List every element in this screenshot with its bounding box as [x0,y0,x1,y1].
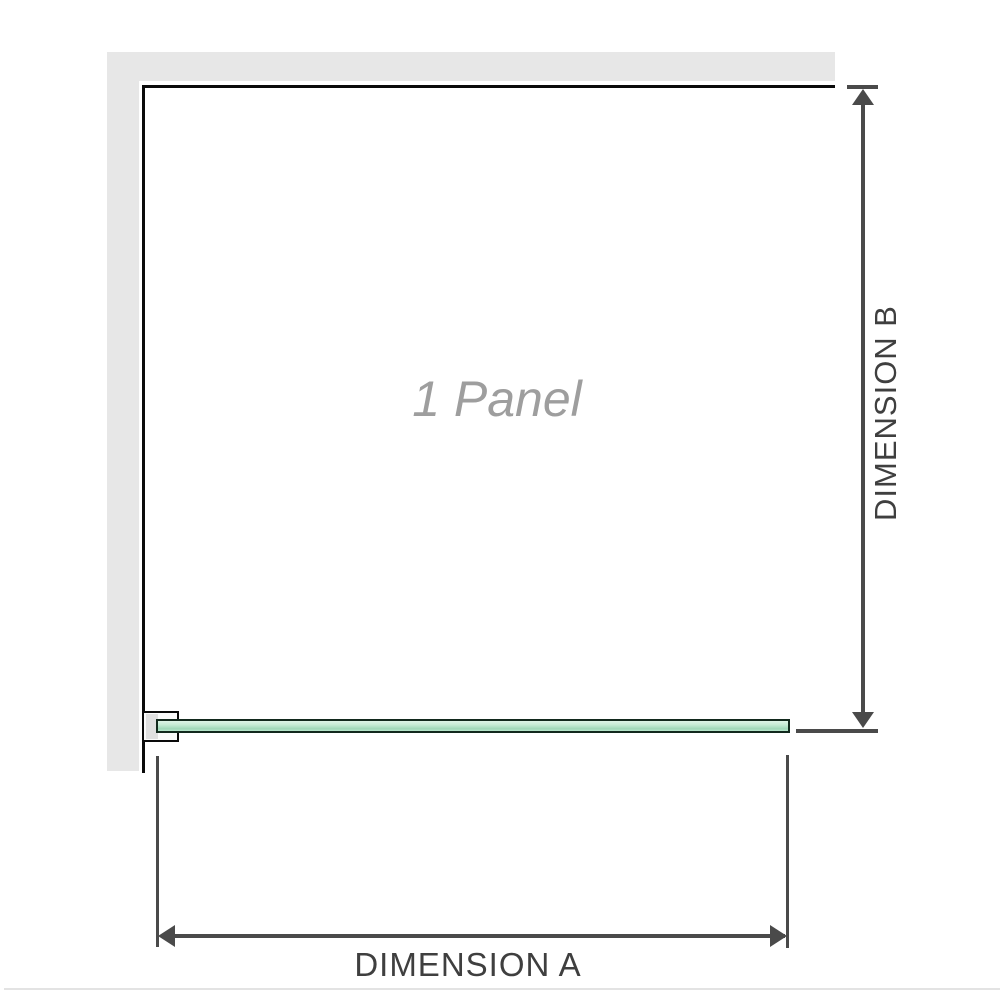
enclosure-outline-top-edge [142,85,835,88]
dimension-a-right-extension-line [786,755,789,948]
dimension-b-arrow-up-icon [852,89,874,105]
bottom-divider [4,988,1000,990]
dimension-a-arrow-left-icon [158,925,175,947]
enclosure-outline-left-edge [142,85,145,773]
dimension-a-line [161,934,785,938]
panel-dimension-diagram: 1 Panel DIMENSION B DIMENSION A [0,0,1000,1000]
panel-count-label: 1 Panel [412,370,582,428]
dimension-b-bottom-cap [796,729,878,733]
wall-top-strip [107,52,835,81]
wall-left-strip [107,52,139,771]
dimension-a-left-extension-line [156,756,159,947]
dimension-a-label: DIMENSION A [354,946,581,984]
glass-panel [156,719,790,733]
dimension-b-line [861,96,865,720]
dimension-b-label: DIMENSION B [868,305,904,521]
dimension-a-arrow-right-icon [770,925,787,947]
dimension-b-arrow-down-icon [852,712,874,728]
